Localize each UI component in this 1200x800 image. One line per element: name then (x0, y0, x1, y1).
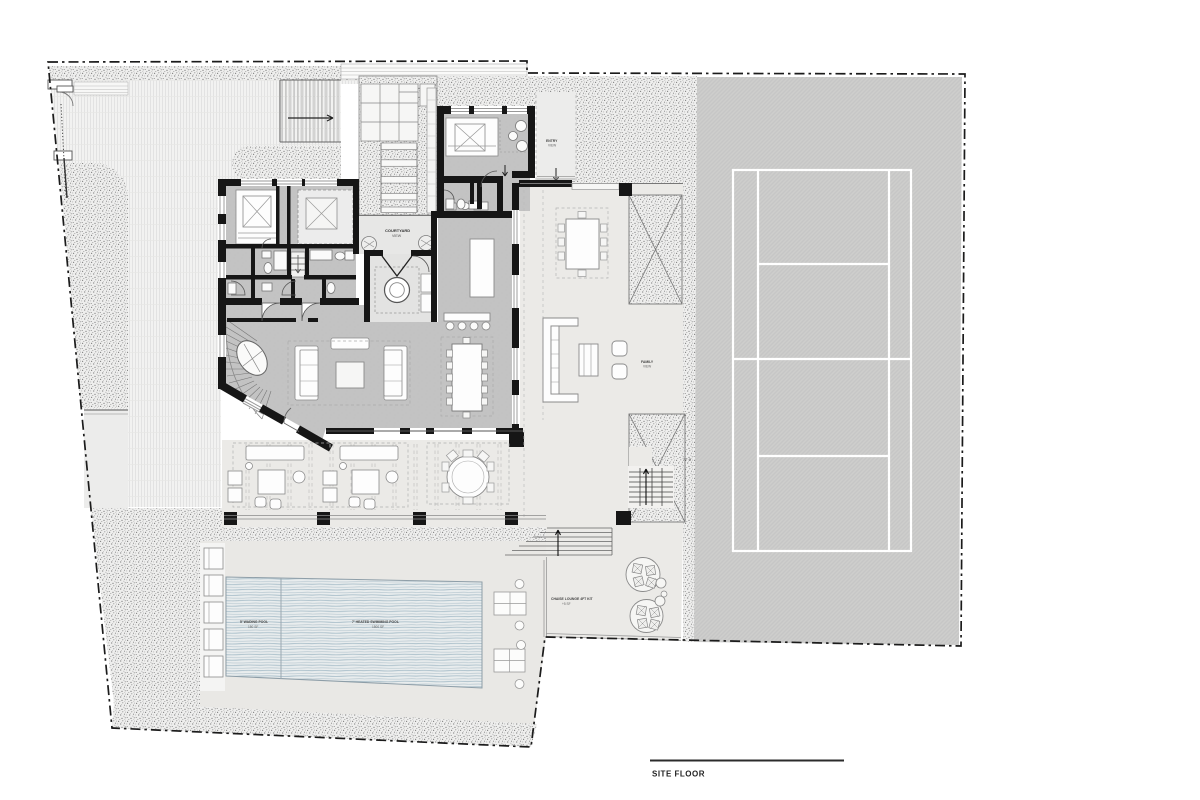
svg-text:72" Ø: 72" Ø (683, 458, 692, 462)
svg-text:5' WADING POOL: 5' WADING POOL (240, 620, 268, 624)
svg-text:VIEW: VIEW (643, 365, 651, 369)
svg-text:FAMILY: FAMILY (641, 360, 654, 364)
svg-text:1500 SF: 1500 SF (372, 625, 384, 629)
svg-text:ENTRY: ENTRY (546, 139, 558, 143)
svg-text:+5 SF: +5 SF (562, 602, 571, 606)
svg-text:150 SF: 150 SF (248, 625, 258, 629)
svg-text:COURTYARD: COURTYARD (385, 228, 410, 233)
svg-text:7' HEATED SWIMMING POOL: 7' HEATED SWIMMING POOL (352, 620, 399, 624)
svg-text:VIEW: VIEW (548, 144, 556, 148)
svg-text:SITE FLOOR: SITE FLOOR (652, 770, 705, 779)
svg-text:CHAISE LOUNGE 4FT KIT: CHAISE LOUNGE 4FT KIT (551, 597, 594, 601)
svg-text:VIEW: VIEW (392, 234, 402, 238)
